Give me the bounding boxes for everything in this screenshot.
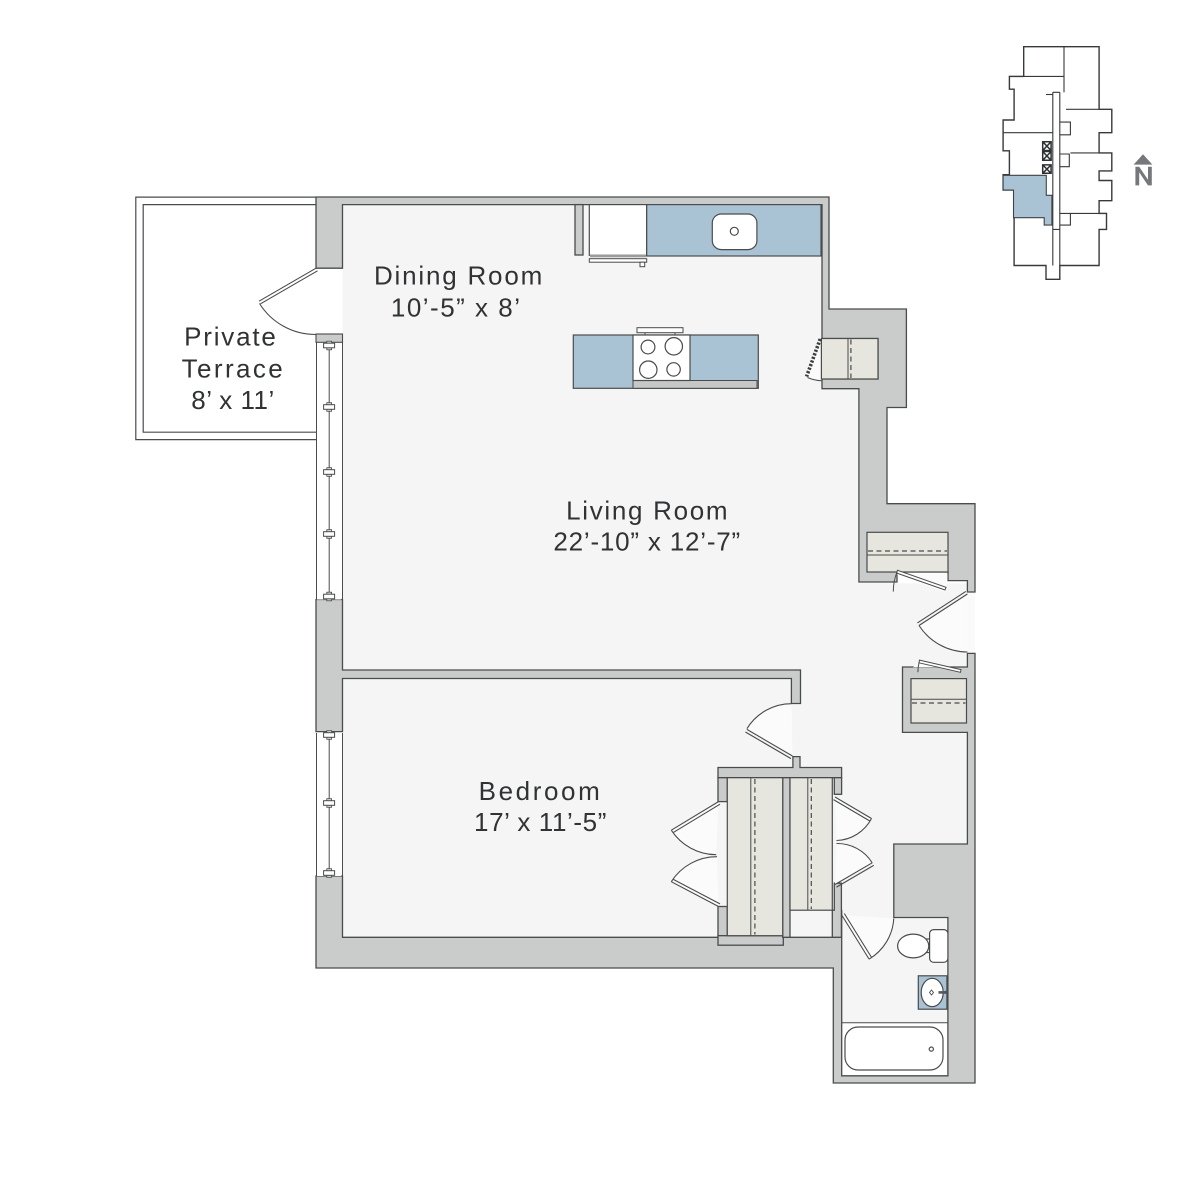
svg-text:Bedroom: Bedroom [479,776,603,806]
svg-text:Dining Room: Dining Room [374,261,544,291]
svg-text:22’-10” x 12’-7”: 22’-10” x 12’-7” [553,527,741,557]
svg-text:Private: Private [184,322,278,352]
svg-text:17’ x 11’-5”: 17’ x 11’-5” [474,807,607,837]
svg-text:8’ x 11’: 8’ x 11’ [191,385,275,415]
svg-text:Living Room: Living Room [566,495,729,525]
svg-text:Terrace: Terrace [182,353,286,383]
svg-text:10’-5” x 8’: 10’-5” x 8’ [391,293,522,323]
